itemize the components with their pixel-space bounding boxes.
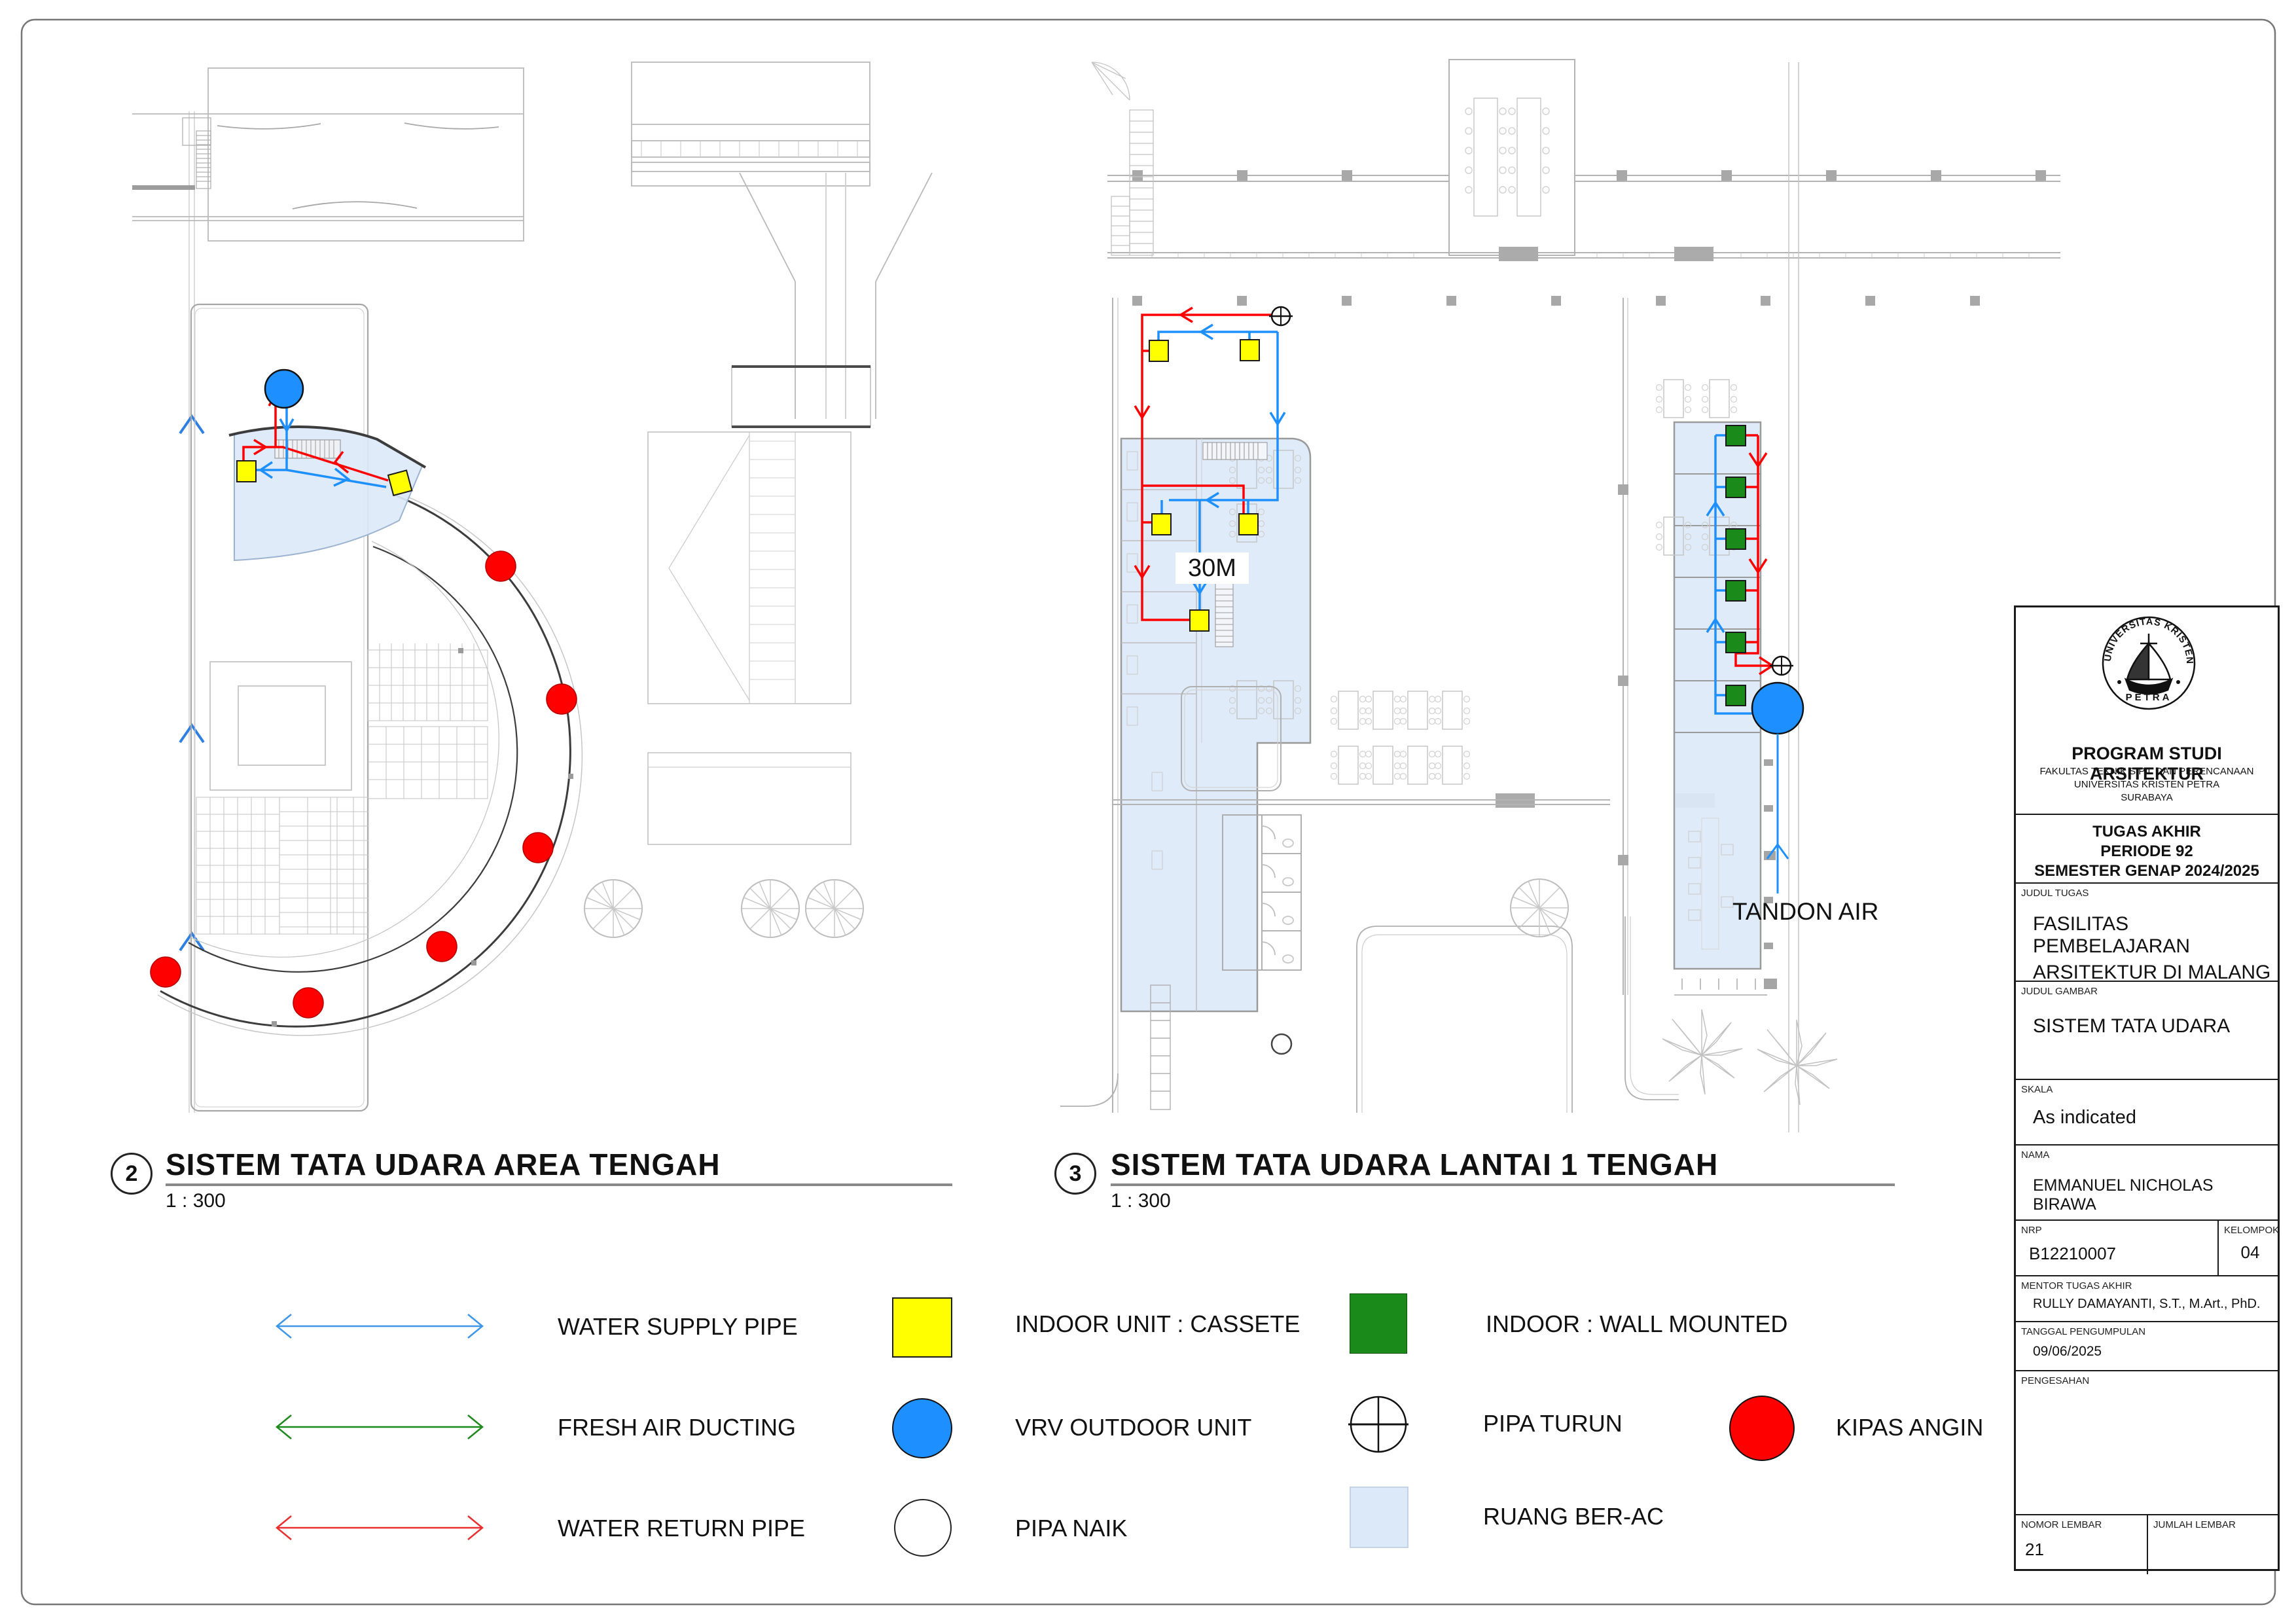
cassette-unit — [1149, 340, 1168, 361]
tanggal-value: 09/06/2025 — [2016, 1344, 2278, 1360]
drawing-title-3: SISTEM TATA UDARA LANTAI 1 TENGAH — [1111, 1147, 1718, 1182]
judul-tugas-line1: FASILITAS PEMBELAJARAN — [2016, 913, 2278, 958]
cassette-unit — [237, 461, 256, 482]
sheet-canvas: 30M — [0, 0, 2296, 1624]
vrv-outdoor-unit — [265, 370, 303, 408]
cassette-unit — [1190, 610, 1209, 631]
tugas-akhir: TUGAS AKHIR — [2016, 823, 2278, 841]
pipa-naik-icon — [1272, 1034, 1291, 1054]
mentor-label: MENTOR TUGAS AKHIR — [2016, 1276, 2278, 1295]
pipa-turun-icon — [1269, 307, 1293, 325]
skala-value: As indicated — [2016, 1107, 2278, 1128]
legend-label: WATER RETURN PIPE — [558, 1515, 805, 1542]
cassette-symbol — [892, 1297, 952, 1358]
palm-tree-icon — [1662, 1009, 1742, 1094]
roof-structures — [210, 662, 351, 790]
kelompok-value: 04 — [2219, 1242, 2282, 1263]
lattice-sw — [196, 797, 368, 934]
wall-stub — [132, 185, 195, 190]
water-supply-arrow-icon — [272, 1312, 488, 1341]
cassette-unit — [1152, 514, 1171, 535]
stair-nw-plan3 — [1092, 62, 1153, 255]
kipas-angin-symbol — [1729, 1396, 1795, 1461]
tandon-air-line — [1767, 734, 1788, 893]
title-underline — [166, 1183, 952, 1186]
wall-mounted-symbol — [1350, 1293, 1407, 1354]
legend-label: FRESH AIR DUCTING — [558, 1414, 796, 1441]
title-underline — [1111, 1183, 1895, 1186]
cassette-unit — [1240, 340, 1259, 361]
kelompok-label: KELOMPOK — [2219, 1221, 2282, 1240]
tree-icon — [806, 880, 863, 937]
meeting-tables — [1465, 98, 1549, 216]
context-building-nw — [132, 68, 524, 241]
judul-gambar: SISTEM TATA UDARA — [2016, 1015, 2278, 1038]
tandon-air-label: TANDON AIR — [1732, 898, 1878, 925]
drawing-number-2: 2 — [111, 1153, 152, 1195]
stair-nw — [183, 118, 211, 189]
legend-label: VRV OUTDOOR UNIT — [1015, 1414, 1251, 1441]
judul-gambar-label: JUDUL GAMBAR — [2016, 982, 2278, 1001]
distance-label: 30M — [1188, 554, 1236, 582]
fakultas: FAKULTAS TEKNIK SIPIL DAN PERENCANAAN — [2016, 766, 2278, 777]
tree-icon — [1511, 879, 1568, 937]
pipa-naik-symbol — [894, 1499, 952, 1557]
judul-tugas-label: JUDUL TUGAS — [2016, 884, 2278, 903]
context-buildings-east — [648, 367, 870, 844]
vrv-outdoor-unit — [1752, 683, 1803, 734]
main-building-plan2 — [191, 304, 368, 1111]
skala-label: SKALA — [2016, 1080, 2278, 1099]
pipa-turun-icon — [1770, 657, 1793, 675]
cassette-unit — [1239, 514, 1258, 535]
plan-area-tengah — [132, 62, 932, 1113]
legend-label: RUANG BER-AC — [1483, 1503, 1664, 1530]
drawing-scale-3: 1 : 300 — [1111, 1190, 1171, 1212]
mentor-value: RULLY DAMAYANTI, S.T., M.Art., PhD. — [2016, 1297, 2278, 1312]
tree-icon — [742, 880, 799, 937]
drawing-title-2: SISTEM TATA UDARA AREA TENGAH — [166, 1147, 721, 1182]
svg-text:PETRA: PETRA — [2126, 692, 2172, 703]
hatch-ne — [641, 141, 857, 157]
legend-label: PIPA TURUN — [1483, 1410, 1623, 1437]
fresh-air-arrow-icon — [272, 1413, 488, 1441]
title-block: UNIVERSITAS KRISTEN PETRA PROGRAM STUDI … — [2014, 605, 2280, 1571]
legend-label: INDOOR : WALL MOUNTED — [1486, 1310, 1787, 1338]
tree-icon — [584, 880, 642, 937]
legend-label: WATER SUPPLY PIPE — [558, 1313, 798, 1341]
legend-label: INDOOR UNIT : CASSETE — [1015, 1310, 1300, 1338]
ring-building — [158, 492, 582, 1036]
water-return-arrow-icon — [272, 1513, 488, 1542]
periode: PERIODE 92 — [2016, 842, 2278, 861]
palm-tree-icon — [1757, 1020, 1837, 1105]
ruang-ac-block-left — [1121, 439, 1310, 1011]
tanggal-label: TANGGAL PENGUMPULAN — [2016, 1322, 2278, 1341]
semester: SEMESTER GENAP 2024/2025 — [2016, 862, 2278, 880]
universitas: UNIVERSITAS KRISTEN PETRA — [2016, 779, 2278, 790]
ruang-ac-symbol — [1350, 1487, 1408, 1548]
pipa-turun-symbol — [1347, 1393, 1410, 1456]
university-logo: UNIVERSITAS KRISTEN PETRA — [2100, 614, 2198, 712]
legend-label: PIPA NAIK — [1015, 1515, 1127, 1542]
legend-label: KIPAS ANGIN — [1836, 1414, 1983, 1441]
drawing-scale-2: 1 : 300 — [166, 1190, 226, 1212]
nama-label: NAMA — [2016, 1146, 2278, 1164]
vrv-symbol — [892, 1398, 952, 1458]
jumlah-label: JUMLAH LEMBAR — [2148, 1515, 2282, 1534]
lattice-ne — [368, 643, 488, 799]
program-studi: PROGRAM STUDI ARSITEKTUR — [2016, 744, 2278, 784]
pengesahan-label: PENGESAHAN — [2016, 1371, 2278, 1390]
plan-lantai1-tengah: 30M — [1060, 60, 2060, 1132]
kota: SURABAYA — [2016, 792, 2278, 803]
drawing-number-3: 3 — [1054, 1153, 1096, 1195]
nama-value: EMMANUEL NICHOLAS BIRAWA — [2016, 1176, 2278, 1214]
